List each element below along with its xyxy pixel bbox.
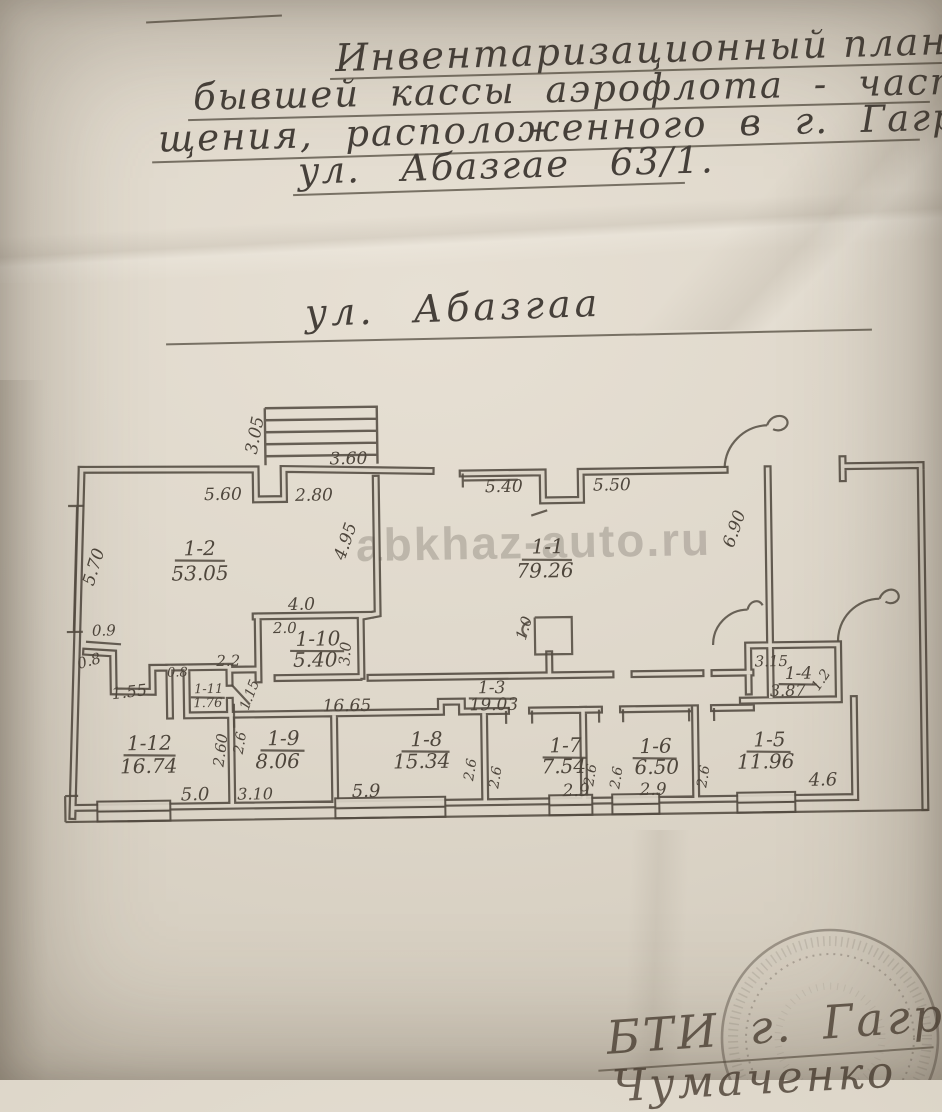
- room-1-5-id: 1-5: [753, 727, 786, 751]
- dim-label: 2.6: [694, 764, 714, 790]
- dim-label: 2.2: [215, 652, 240, 670]
- dim-label: 6.90: [719, 508, 750, 550]
- room-1-3-area: 19.03: [469, 695, 518, 716]
- room-1-6-area: 6.50: [634, 755, 679, 780]
- dim-label: 4.0: [287, 595, 315, 615]
- room-1-12-area: 16.74: [120, 754, 178, 779]
- room-1-1-id: 1-1: [531, 534, 564, 558]
- dim-label: 5.70: [79, 546, 109, 588]
- room-1-8-id: 1-8: [410, 727, 443, 751]
- room-1-9-id: 1-9: [267, 726, 300, 750]
- room-1-2-area: 53.05: [171, 561, 229, 586]
- room-1-5-area: 11.96: [737, 749, 795, 774]
- room-1-8-area: 15.34: [393, 749, 451, 774]
- dim-label: 4.95: [330, 520, 362, 563]
- dim-label: 2.6: [486, 765, 506, 791]
- dim-label: 3.60: [329, 449, 367, 470]
- room-1-2-id: 1-2: [183, 536, 216, 560]
- dim-label: 2.0: [272, 619, 298, 637]
- dim-label: 2.6: [231, 731, 251, 757]
- dim-label: 5.40: [485, 477, 523, 498]
- dim-label: 1.55: [110, 680, 148, 703]
- scanned-floor-plan-photo: { "photo": { "title_lines": [ "Инвентари…: [0, 0, 942, 1080]
- dim-label: 2.6: [607, 765, 627, 791]
- dim-label: 3.15: [754, 652, 788, 670]
- dim-label: 1.2: [808, 666, 834, 693]
- floor-plan-drawing: 5.60 2.80 3.05 3.60 5.70 4.95 5.40 5.50 …: [0, 0, 942, 1080]
- room-1-4-area: 3.87: [770, 681, 807, 701]
- dim-label: 5.50: [593, 475, 631, 496]
- dim-label: 1.15: [237, 677, 263, 712]
- dim-label: 0.8: [167, 665, 188, 680]
- dim-label: 0.9: [92, 621, 117, 639]
- room-1-9-area: 8.06: [255, 749, 300, 774]
- wall-lines-ink: [68, 458, 926, 819]
- dim-label: 2.6: [461, 757, 481, 783]
- dim-label: 2.80: [294, 485, 333, 506]
- dim-label: 5.0: [181, 784, 210, 805]
- dim-label: 5.60: [204, 485, 242, 506]
- dim-label: 1.0: [512, 614, 536, 643]
- room-1-12-id: 1-12: [127, 731, 172, 756]
- room-1-10-area: 5.40: [293, 647, 338, 672]
- dim-label: 3.10: [237, 784, 273, 803]
- dim-label: 4.6: [808, 769, 838, 790]
- dim-label: 2.9: [638, 780, 666, 800]
- room-1-1-area: 79.26: [516, 558, 574, 583]
- room-1-11-area: 1.76: [193, 696, 222, 711]
- wall-lines-core: [68, 458, 926, 819]
- dim-label: 16.65: [322, 696, 371, 717]
- room-1-7-area: 7.54: [541, 754, 586, 779]
- dim-label: 5.9: [352, 781, 381, 802]
